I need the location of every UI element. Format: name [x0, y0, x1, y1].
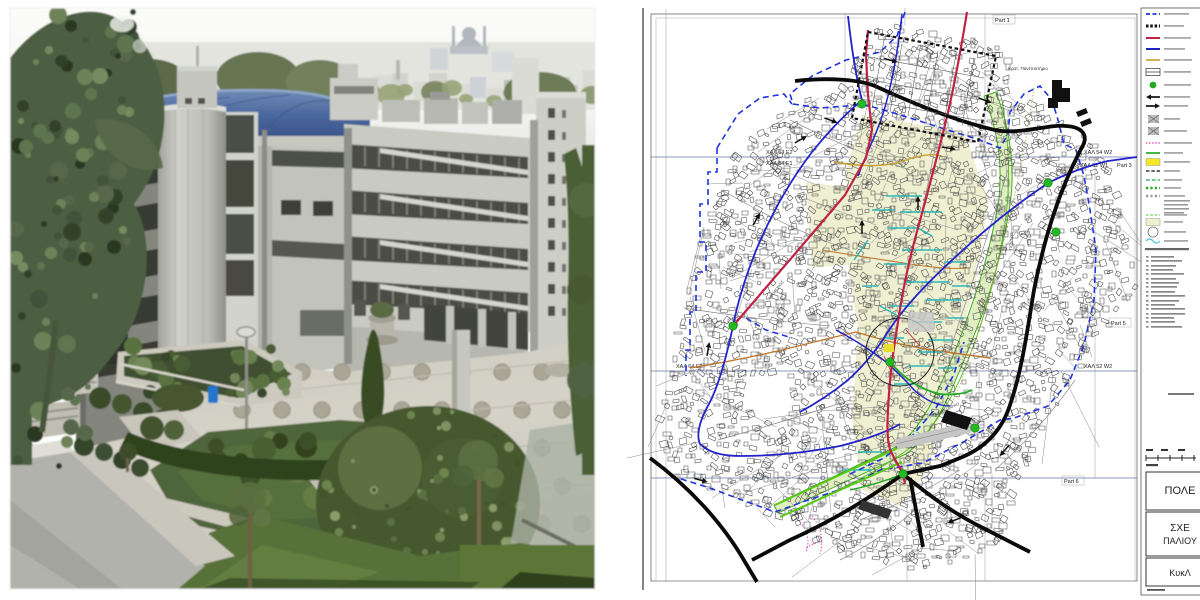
svg-text:ΧΑΛ 52 W2: ΧΑΛ 52 W2: [1084, 364, 1112, 370]
svg-text:P: P: [936, 301, 940, 308]
svg-text:ΠΟΛΕ: ΠΟΛΕ: [1165, 485, 1196, 497]
svg-text:ΣΧΕ: ΣΧΕ: [1170, 523, 1190, 534]
svg-text:Part 1: Part 1: [995, 18, 1010, 24]
svg-text:ΠΑΛΙΟΥ: ΠΑΛΙΟΥ: [1163, 536, 1197, 546]
svg-text:Κρατ. Πανεπιστήμιο: Κρατ. Πανεπιστήμιο: [1008, 65, 1048, 71]
svg-text:ΧΑΛ 54 W2: ΧΑΛ 54 W2: [1084, 150, 1112, 156]
svg-text:ΚυκΛ: ΚυκΛ: [1169, 568, 1190, 578]
svg-text:Part 3: Part 3: [1117, 163, 1132, 169]
svg-text:Part 6: Part 6: [1064, 479, 1079, 485]
svg-text:P: P: [862, 295, 866, 302]
svg-text:ΑΡΧ.: ΑΡΧ.: [820, 526, 829, 531]
svg-text:P: P: [880, 439, 884, 446]
svg-text:Part 5: Part 5: [1111, 321, 1126, 327]
